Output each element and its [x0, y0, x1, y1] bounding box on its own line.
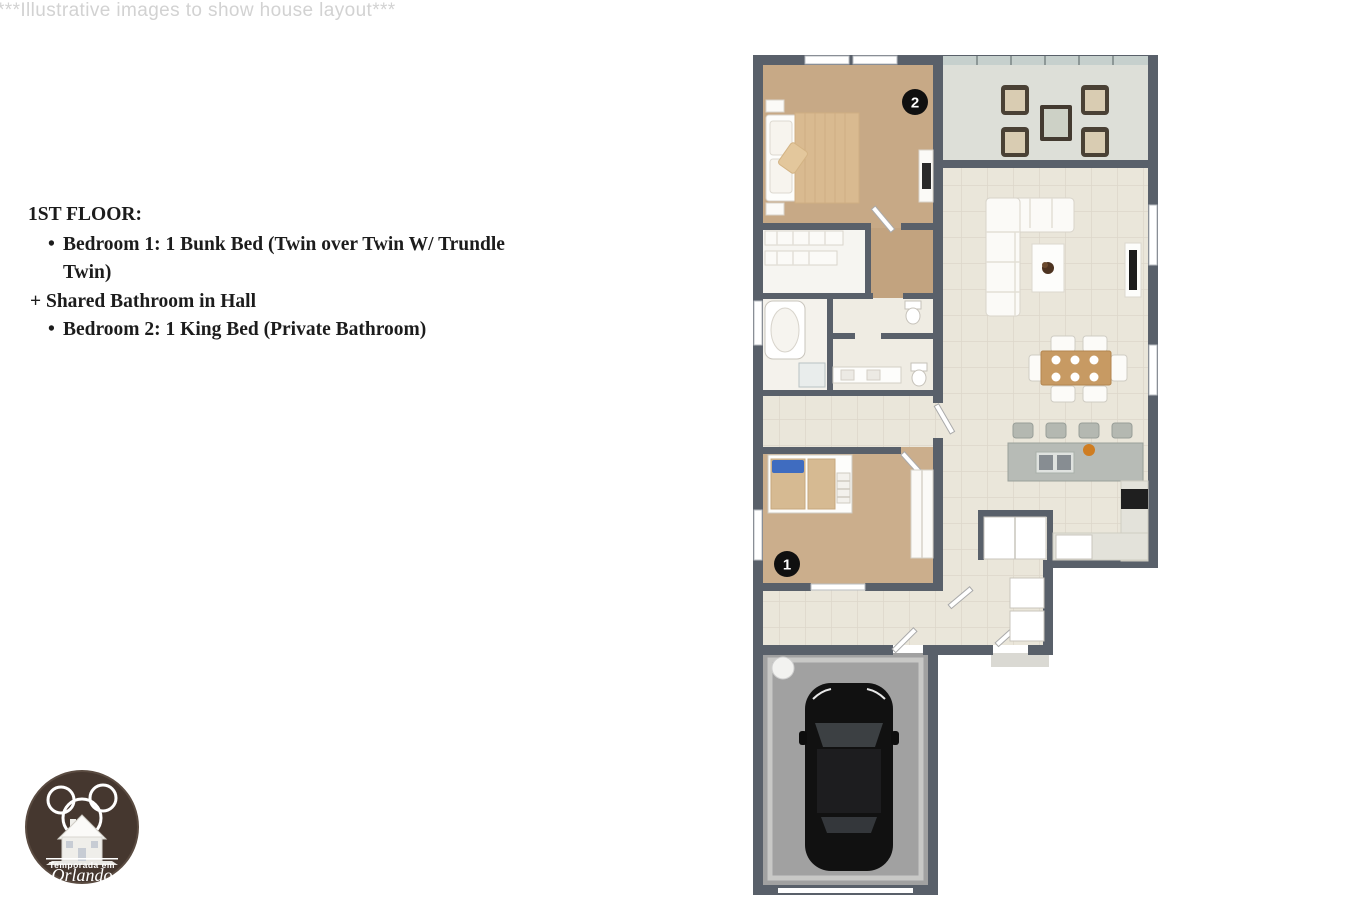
coffee-table [1032, 244, 1064, 292]
entry-step [991, 653, 1049, 667]
toilet [905, 301, 921, 324]
kitchen-island [1008, 443, 1143, 481]
fruit-bowl [1083, 444, 1095, 456]
entry-closet [984, 517, 1046, 559]
dresser [919, 150, 933, 202]
svg-text:2: 2 [911, 94, 919, 111]
floor-description: 1ST FLOOR: Bedroom 1: 1 Bunk Bed (Twin o… [28, 201, 568, 345]
bedroom-2-hall-floor [870, 228, 943, 298]
bedroom-2-description: Bedroom 2: 1 King Bed (Private Bathroom) [28, 316, 535, 345]
bedroom-2-window [853, 56, 897, 64]
bedroom-2-window [805, 56, 849, 64]
rear-hall-floor [758, 588, 943, 645]
dining-window [1149, 345, 1157, 395]
living-window [1149, 205, 1157, 265]
washer [1010, 578, 1044, 608]
patio-chair [1081, 85, 1109, 115]
car [799, 683, 899, 871]
bathtub [765, 301, 805, 359]
logo-text-line2: Orlando [51, 865, 112, 885]
garage-door-opening [778, 888, 913, 893]
floor-plan: 2 1 [753, 55, 1163, 900]
nightstand [766, 100, 784, 112]
king-bed [766, 113, 859, 203]
double-vanity [833, 367, 901, 383]
patio-chair [1001, 127, 1029, 157]
temporada-em-orlando-logo: Temporada em Orlando [24, 768, 140, 886]
patio-chair [1081, 127, 1109, 157]
svg-text:1: 1 [783, 556, 791, 573]
shared-bathroom-description: + Shared Bathroom in Hall [28, 288, 568, 317]
range [1121, 489, 1148, 509]
water-heater [772, 657, 794, 679]
room-marker-2: 2 [902, 89, 928, 115]
bunk-bed [768, 455, 852, 513]
floor-title: 1ST FLOOR: [28, 201, 568, 230]
bedroom-1-description: Bedroom 1: 1 Bunk Bed (Twin over Twin W/… [28, 231, 535, 288]
toilet [911, 363, 927, 386]
nightstand [766, 203, 784, 215]
tv-console [1125, 243, 1141, 297]
bathroom-window [754, 301, 762, 345]
closet-counter [765, 251, 837, 265]
patio-chair [1001, 85, 1029, 115]
dryer [1010, 611, 1044, 641]
dining-table [1041, 351, 1111, 385]
hallway-floor [758, 390, 943, 447]
room-marker-1: 1 [774, 551, 800, 577]
patio-table [1040, 105, 1072, 141]
closet [911, 470, 933, 558]
bedroom-1-window [754, 510, 762, 560]
shower [799, 363, 825, 387]
bedroom-1-rear-window [811, 584, 865, 590]
fridge [1056, 535, 1092, 559]
illustrative-watermark: ***Illustrative images to show house lay… [0, 0, 396, 22]
